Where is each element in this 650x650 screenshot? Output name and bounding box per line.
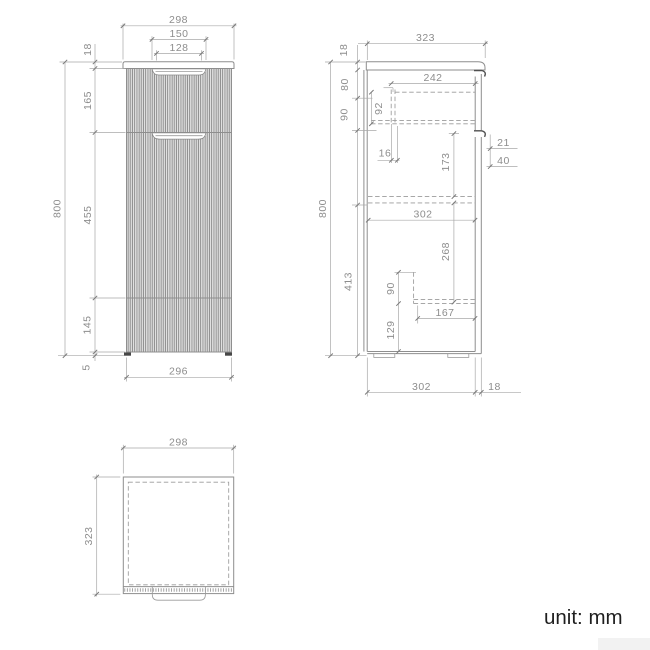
side-hidden-drawer-box [371, 90, 475, 125]
dim-label-21: 21 [497, 137, 510, 149]
side-door-front [475, 137, 481, 354]
dim-label-298-front: 298 [169, 14, 188, 26]
dim-label-323-top: 323 [83, 526, 95, 545]
dim-label-16: 16 [379, 147, 392, 159]
top-hidden-carcass [128, 482, 228, 585]
side-handle-profile-top [474, 71, 485, 77]
dim-front-handle-128: 128 [154, 42, 204, 61]
dim-label-80: 80 [339, 78, 351, 91]
side-feet [374, 354, 469, 358]
dim-label-167: 167 [435, 307, 454, 319]
front-feet [124, 353, 232, 356]
side-view: 323 18 80 90 413 800 242 92 [317, 32, 521, 396]
front-handle-recess-top [152, 69, 206, 75]
dim-side-242: 242 [389, 72, 479, 84]
watermark-strip [598, 638, 650, 650]
dim-label-90-lower: 90 [385, 282, 397, 295]
dim-label-40: 40 [497, 155, 510, 167]
dim-label-800-front: 800 [52, 199, 64, 218]
dim-label-268: 268 [440, 242, 452, 261]
dim-label-5: 5 [81, 364, 93, 370]
dim-top-depth: 323 [83, 475, 120, 597]
dim-side-167: 167 [418, 306, 475, 324]
front-countertop [123, 62, 234, 69]
dim-label-296: 296 [169, 366, 188, 378]
unit-label: unit: mm [544, 606, 623, 630]
top-countertop-outline [123, 477, 233, 594]
side-handle-profile-middle [474, 131, 485, 137]
dim-side-handle-21-40: 21 40 [487, 135, 518, 168]
dim-label-298-top: 298 [169, 436, 188, 448]
side-hidden-bracket [414, 272, 476, 303]
dim-side-depth-top: 323 [358, 32, 488, 60]
dim-label-173: 173 [440, 152, 452, 171]
side-dim-ticks [328, 42, 492, 395]
dim-side-16: 16 [378, 124, 400, 163]
dim-label-800-side: 800 [317, 199, 329, 218]
dim-side-92: 92 [371, 88, 393, 124]
dim-label-129: 129 [385, 320, 397, 339]
dim-label-413: 413 [343, 272, 355, 291]
dim-label-90-upper: 90 [339, 108, 351, 121]
front-fluted-body [127, 69, 232, 353]
dim-label-302-bottom: 302 [412, 381, 431, 393]
drawing-svg: 298 150 128 18 165 455 145 5 [0, 0, 650, 650]
top-view: 298 323 [83, 436, 236, 600]
dim-side-inner-width: 302 [368, 209, 475, 221]
dim-label-145: 145 [82, 315, 94, 334]
dim-label-128: 128 [169, 42, 188, 54]
dim-label-150: 150 [169, 28, 188, 40]
dim-label-302-inner: 302 [413, 209, 432, 221]
dim-label-92: 92 [373, 102, 385, 115]
dim-label-242: 242 [423, 72, 442, 84]
dim-label-455: 455 [82, 205, 94, 224]
top-dim-ticks [95, 446, 236, 597]
front-handle-recess-middle [152, 133, 206, 139]
dim-label-18-side: 18 [338, 44, 350, 57]
side-back-panel [364, 70, 367, 352]
dim-front-left-chain: 18 165 455 145 5 800 [52, 43, 126, 371]
dim-label-323-side: 323 [416, 32, 435, 44]
side-countertop [366, 62, 485, 70]
dim-label-165: 165 [82, 91, 94, 110]
front-view: 298 150 128 18 165 455 145 5 [52, 14, 237, 382]
dim-side-bottom: 302 18 [367, 358, 521, 397]
dim-side-90-lower-129: 90 129 [385, 272, 416, 351]
dim-label-18-front: 18 [82, 43, 94, 56]
dim-front-width-bottom: 296 [124, 358, 234, 382]
side-hidden-shelf [368, 197, 475, 203]
dim-side-173-268: 173 268 [440, 134, 459, 303]
technical-drawing-page: 298 150 128 18 165 455 145 5 [0, 0, 650, 650]
dim-label-18-bottom: 18 [488, 381, 501, 393]
dim-top-width: 298 [121, 436, 236, 473]
